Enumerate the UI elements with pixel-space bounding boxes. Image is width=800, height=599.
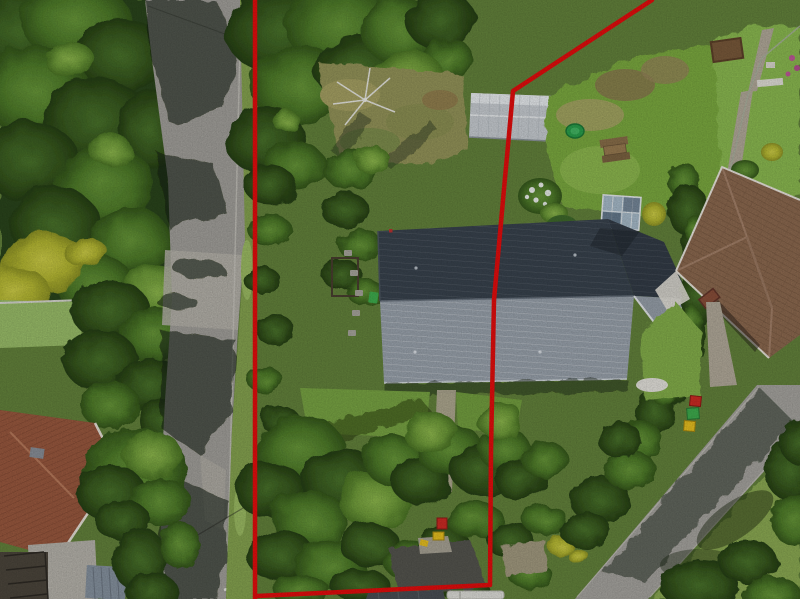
aerial-photo xyxy=(0,0,800,599)
aerial-photo-frame xyxy=(0,0,800,599)
photo-grain xyxy=(0,0,800,599)
